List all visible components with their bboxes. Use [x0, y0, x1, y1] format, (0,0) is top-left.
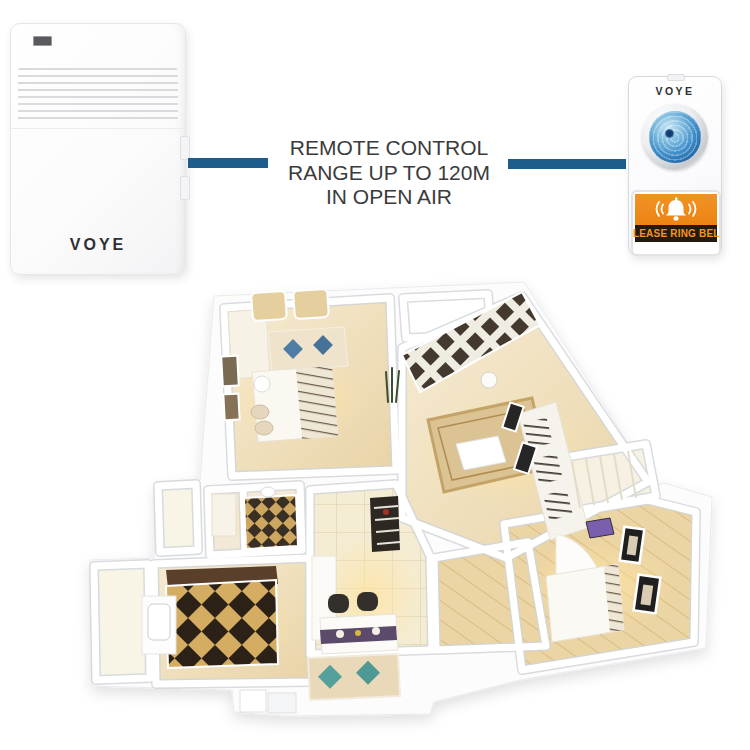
connector-line-left	[188, 158, 268, 168]
doorbell-button-device: VOYE PLEASE RING BELL	[628, 76, 722, 256]
ring-button-lens-icon	[649, 111, 701, 163]
transmitter-brand-label: VOYE	[629, 85, 721, 97]
caption-line-1: REMOTE CONTROL	[258, 136, 520, 161]
ring-bell-plate: PLEASE RING BELL	[635, 225, 717, 242]
connector-line-right	[508, 159, 626, 169]
mounting-tab	[667, 74, 685, 81]
ring-bell-label: PLEASE RING BELL	[631, 228, 721, 239]
side-button	[180, 136, 190, 160]
lens-center-dot	[665, 129, 674, 138]
floor-lamp	[481, 372, 497, 388]
speaker-grille-icon	[18, 68, 178, 124]
case-seam	[11, 128, 185, 129]
receiver-brand-label: VOYE	[11, 236, 185, 254]
bell-panel	[635, 194, 717, 225]
doorbell-receiver: VOYE	[10, 23, 186, 275]
led-indicator	[33, 36, 52, 46]
caption-line-3: IN OPEN AIR	[258, 185, 520, 210]
caption-line-2: RANGE UP TO 120M	[258, 161, 520, 186]
range-caption: REMOTE CONTROL RANGE UP TO 120M IN OPEN …	[258, 136, 520, 210]
side-clip	[180, 176, 190, 200]
label-cover: PLEASE RING BELL	[631, 190, 721, 256]
bell-icon	[645, 196, 707, 223]
ring-button	[642, 104, 708, 170]
